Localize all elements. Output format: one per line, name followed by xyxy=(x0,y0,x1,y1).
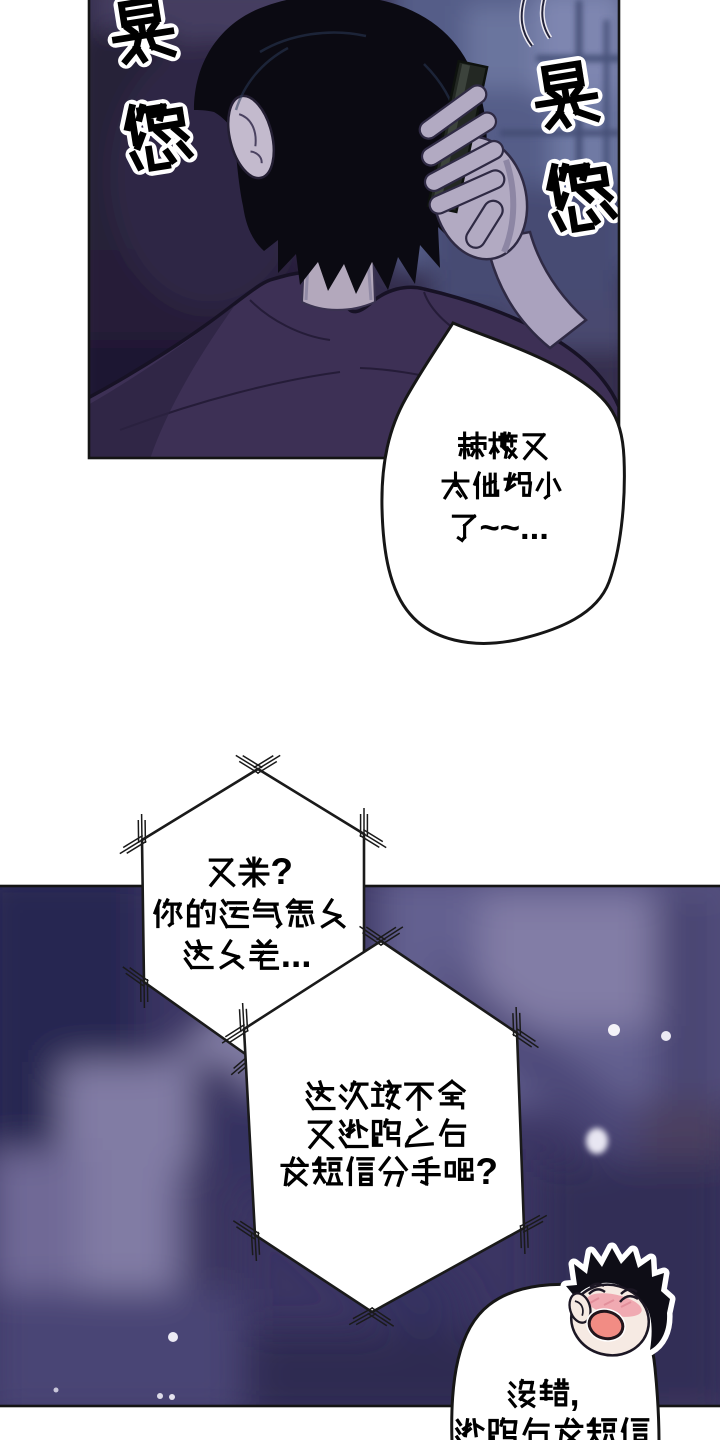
svg-text:?: ? xyxy=(270,851,293,892)
svg-text:~~...: ~~... xyxy=(480,509,549,547)
svg-text:?: ? xyxy=(475,1151,498,1192)
svg-text:,: , xyxy=(570,1374,580,1414)
svg-text:...: ... xyxy=(281,934,312,975)
